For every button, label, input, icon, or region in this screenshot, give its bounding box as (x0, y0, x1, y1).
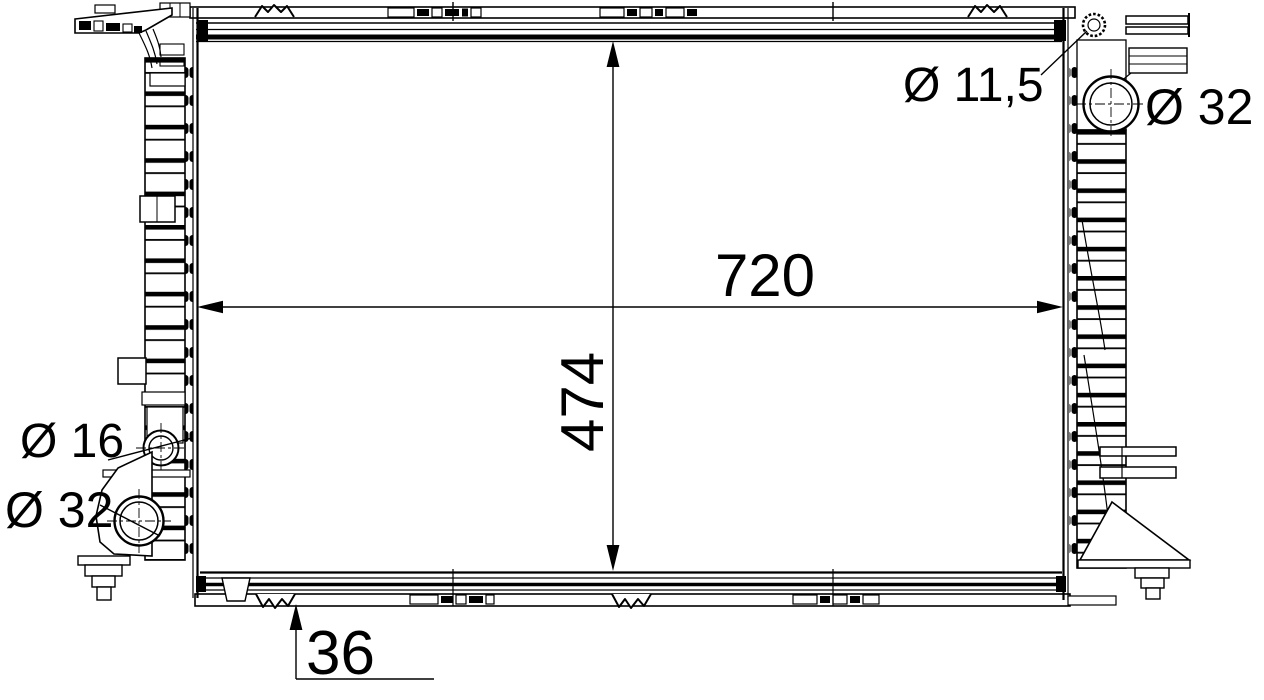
port-32-bottom-left-label: Ø 32 (5, 482, 113, 538)
height-dimension-label: 474 (549, 352, 616, 452)
port-32-top-right (1076, 69, 1146, 139)
right-foot-pin (1135, 568, 1169, 599)
port-16-left-label: Ø 16 (20, 415, 124, 468)
mount-hole-label: Ø 11,5 (903, 59, 1044, 112)
left-top-mount-bracket (75, 5, 184, 68)
dimension-depth-36: 36 (290, 604, 434, 688)
radiator-technical-drawing: 720 474 36 Ø 11,5 Ø 32 Ø 16 Ø 32 (0, 0, 1264, 700)
left-foot-pin (78, 556, 130, 600)
width-dimension-label: 720 (715, 242, 815, 309)
dimension-width-720: 720 (197, 242, 1063, 313)
callout-port-32-top-right: Ø 32 (1145, 79, 1253, 135)
mount-hole-11-5 (1083, 14, 1105, 36)
left-lower-foot (222, 578, 250, 601)
callout-mount-hole: Ø 11,5 (903, 31, 1087, 112)
depth-dimension-label: 36 (306, 619, 375, 688)
dimension-height-474: 474 (549, 41, 619, 571)
port-32-top-right-label: Ø 32 (1145, 79, 1253, 135)
core-bottom-edge (195, 569, 1070, 608)
drawing-canvas: 720 474 36 Ø 11,5 Ø 32 Ø 16 Ø 32 (0, 0, 1264, 700)
right-tank-base (1068, 596, 1116, 605)
core-top-edge (190, 2, 1075, 42)
